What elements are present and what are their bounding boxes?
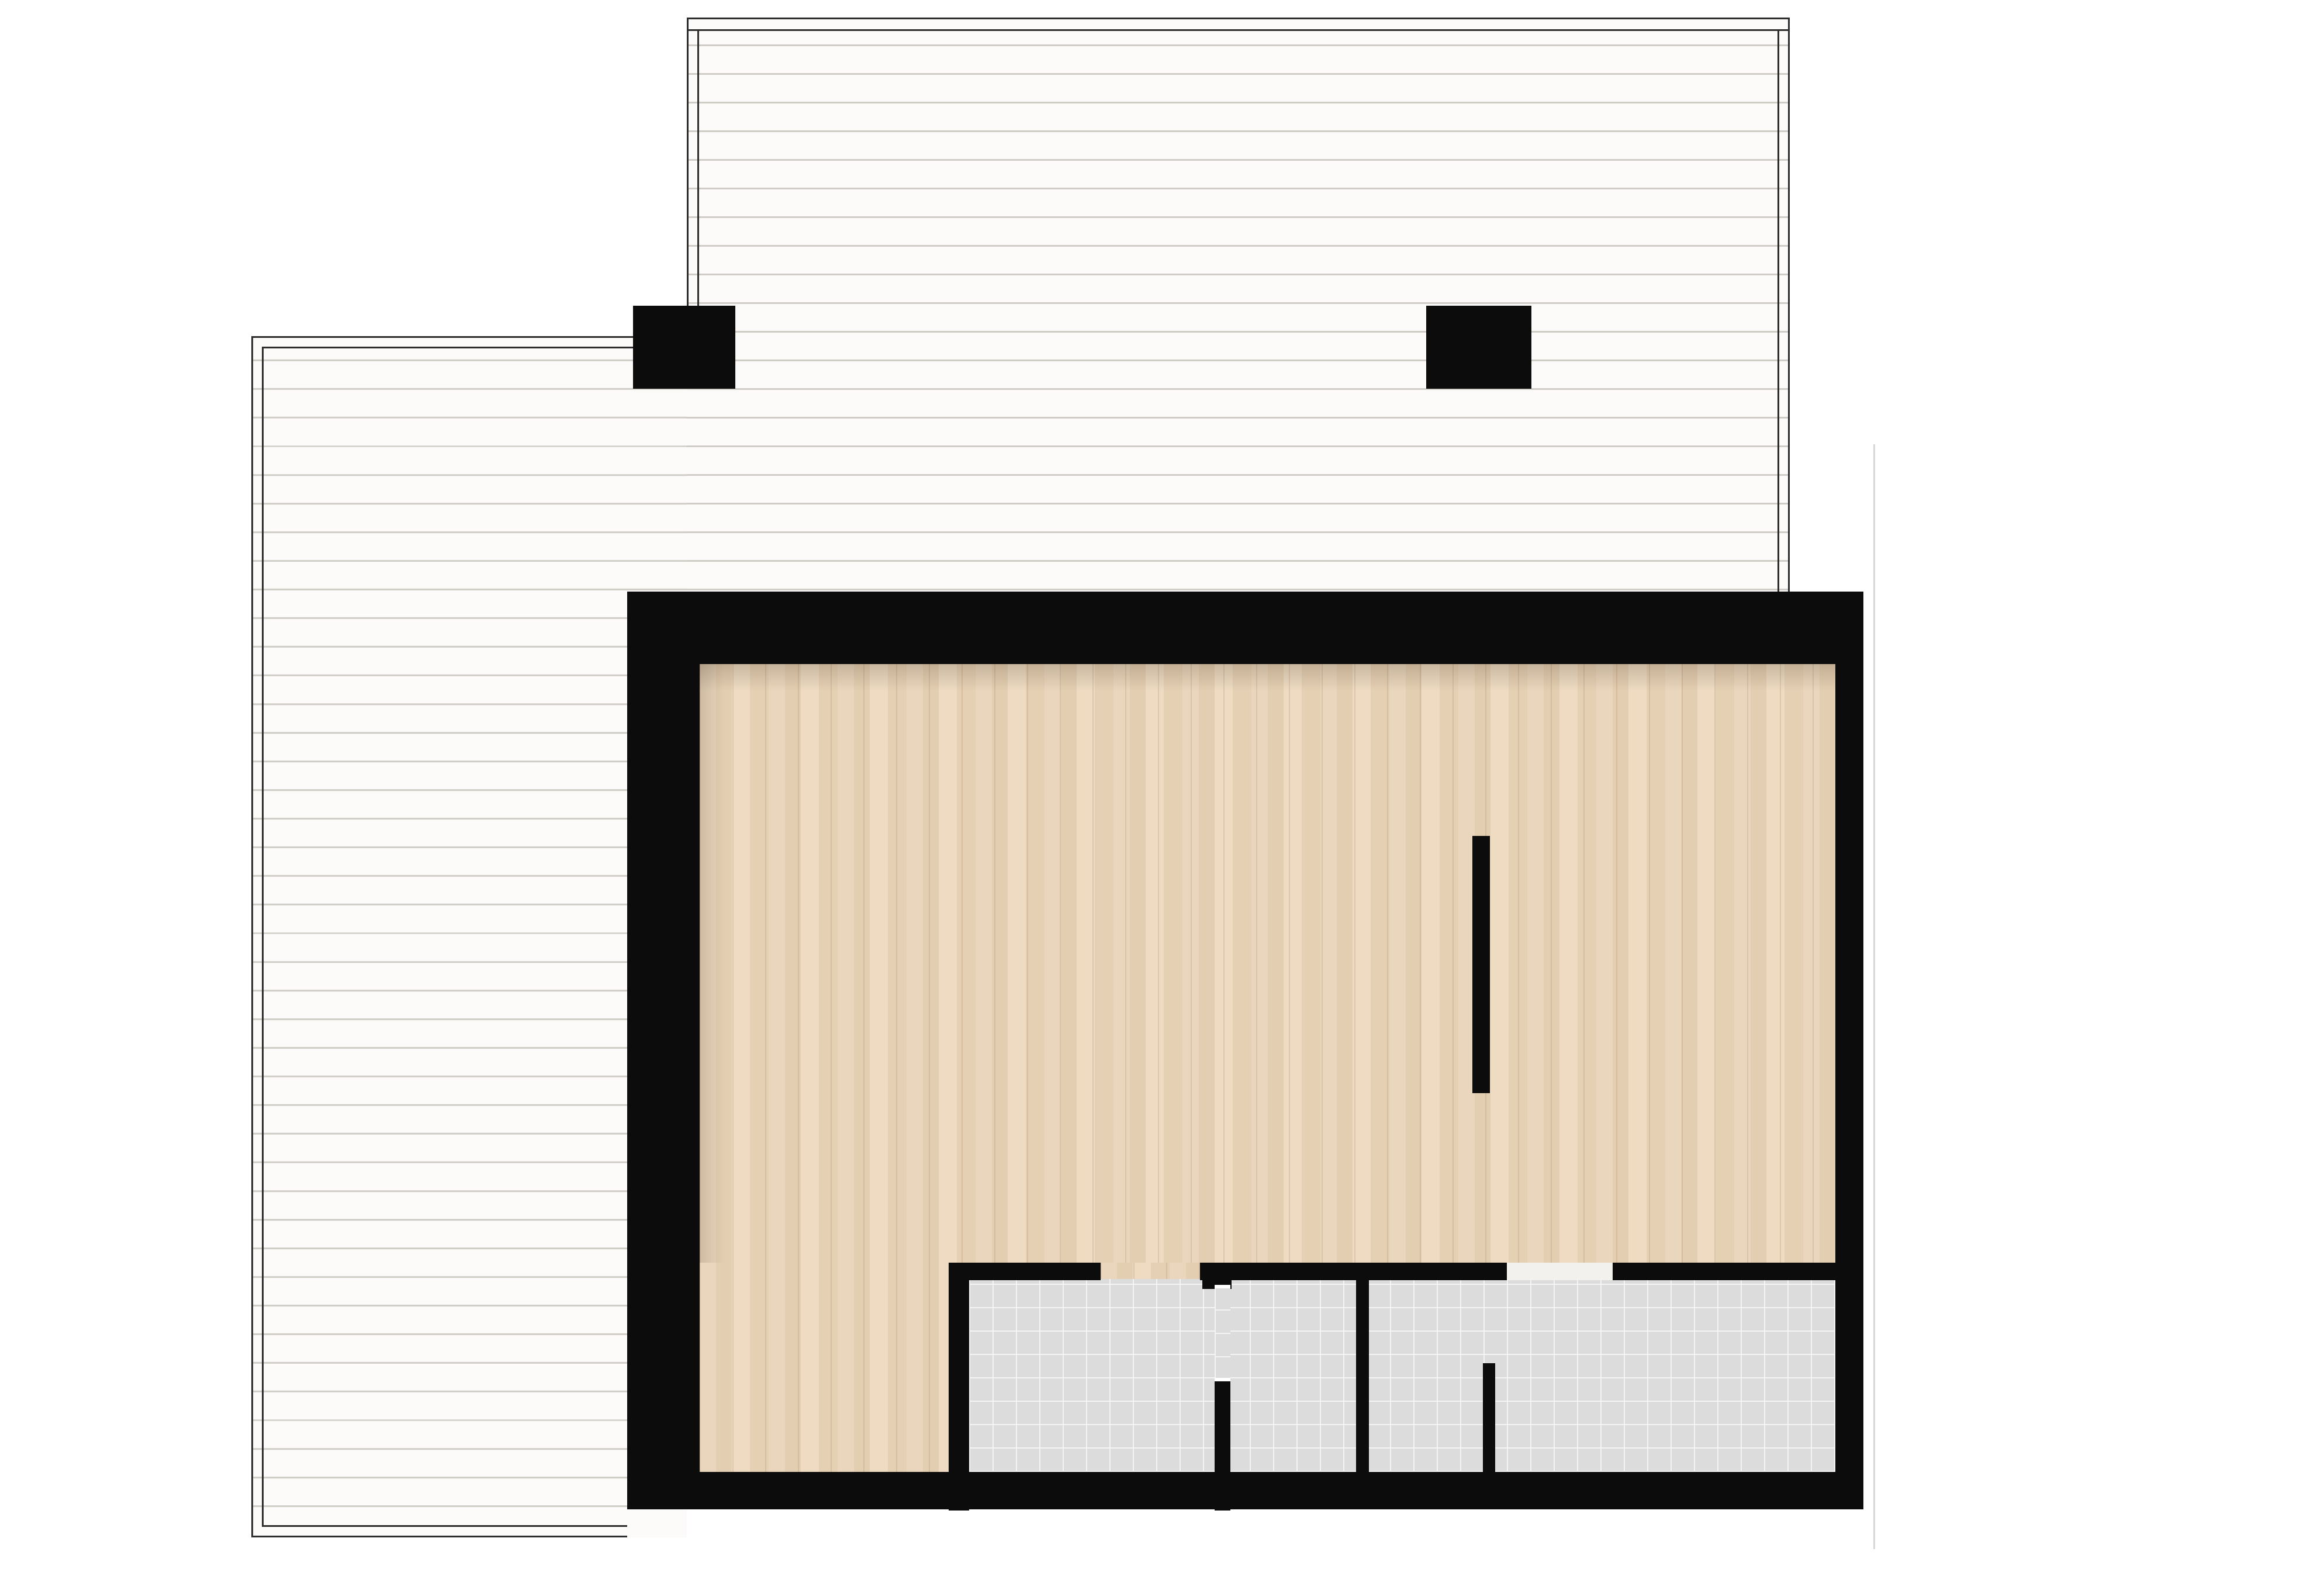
terrace-left-border-bottom-outer — [251, 1536, 627, 1537]
terrace-top-border-top-inner — [687, 29, 1790, 31]
wc1-door-jamb-top — [1215, 1285, 1230, 1288]
wall-interior-b — [1200, 1263, 1507, 1280]
terrace-left-border-left-outer — [251, 336, 253, 1537]
wall-exterior-left — [627, 592, 700, 1509]
wall-exterior-top — [627, 592, 1863, 664]
terrace-top-border-left-outer — [687, 18, 689, 306]
bath-door-opening — [1507, 1263, 1613, 1280]
wall-hall-wc1 — [1215, 1381, 1230, 1511]
terrace-top-border-top-outer — [687, 18, 1790, 19]
terrace-top-border-left-inner — [697, 29, 699, 306]
floor-kitchen-wood — [700, 1263, 949, 1472]
wc1-door-jamb-bottom — [1215, 1378, 1230, 1381]
wall-exterior-right — [1835, 592, 1863, 1509]
floor-bath-tile — [969, 1279, 1835, 1472]
terrace-top-border-right-outer — [1788, 18, 1790, 592]
wall-interior-c — [1613, 1263, 1835, 1280]
wc1-door-opening — [1215, 1288, 1230, 1381]
wall-interior-a — [949, 1263, 1101, 1280]
column-2 — [1426, 306, 1531, 389]
wall-kitchen-hall — [949, 1279, 969, 1511]
floor-hall-door-threshold — [1101, 1263, 1200, 1280]
terrace-top-deck — [687, 18, 1790, 592]
terrace-left-deck — [251, 336, 687, 1537]
wall-exterior-bottom — [627, 1472, 1863, 1509]
wall-wc1-wc2 — [1356, 1279, 1369, 1473]
property-edge-line — [1873, 444, 1875, 1549]
floor-plan — [0, 0, 2324, 1583]
column-1 — [633, 306, 735, 389]
terrace-left-border-top-inner — [262, 347, 633, 348]
wall-wc2-bath — [1483, 1363, 1495, 1473]
floor-shadow-top — [700, 664, 1835, 691]
floor-shadow-left — [700, 664, 724, 1263]
floor-living-wood — [700, 664, 1835, 1263]
terrace-top-border-right-inner — [1777, 29, 1779, 592]
terrace-left-border-left-inner — [262, 347, 264, 1527]
terrace-left-border-bottom-inner — [262, 1525, 627, 1527]
tv-partition-wall — [1472, 836, 1490, 1093]
terrace-left-border-top-outer — [251, 336, 633, 338]
